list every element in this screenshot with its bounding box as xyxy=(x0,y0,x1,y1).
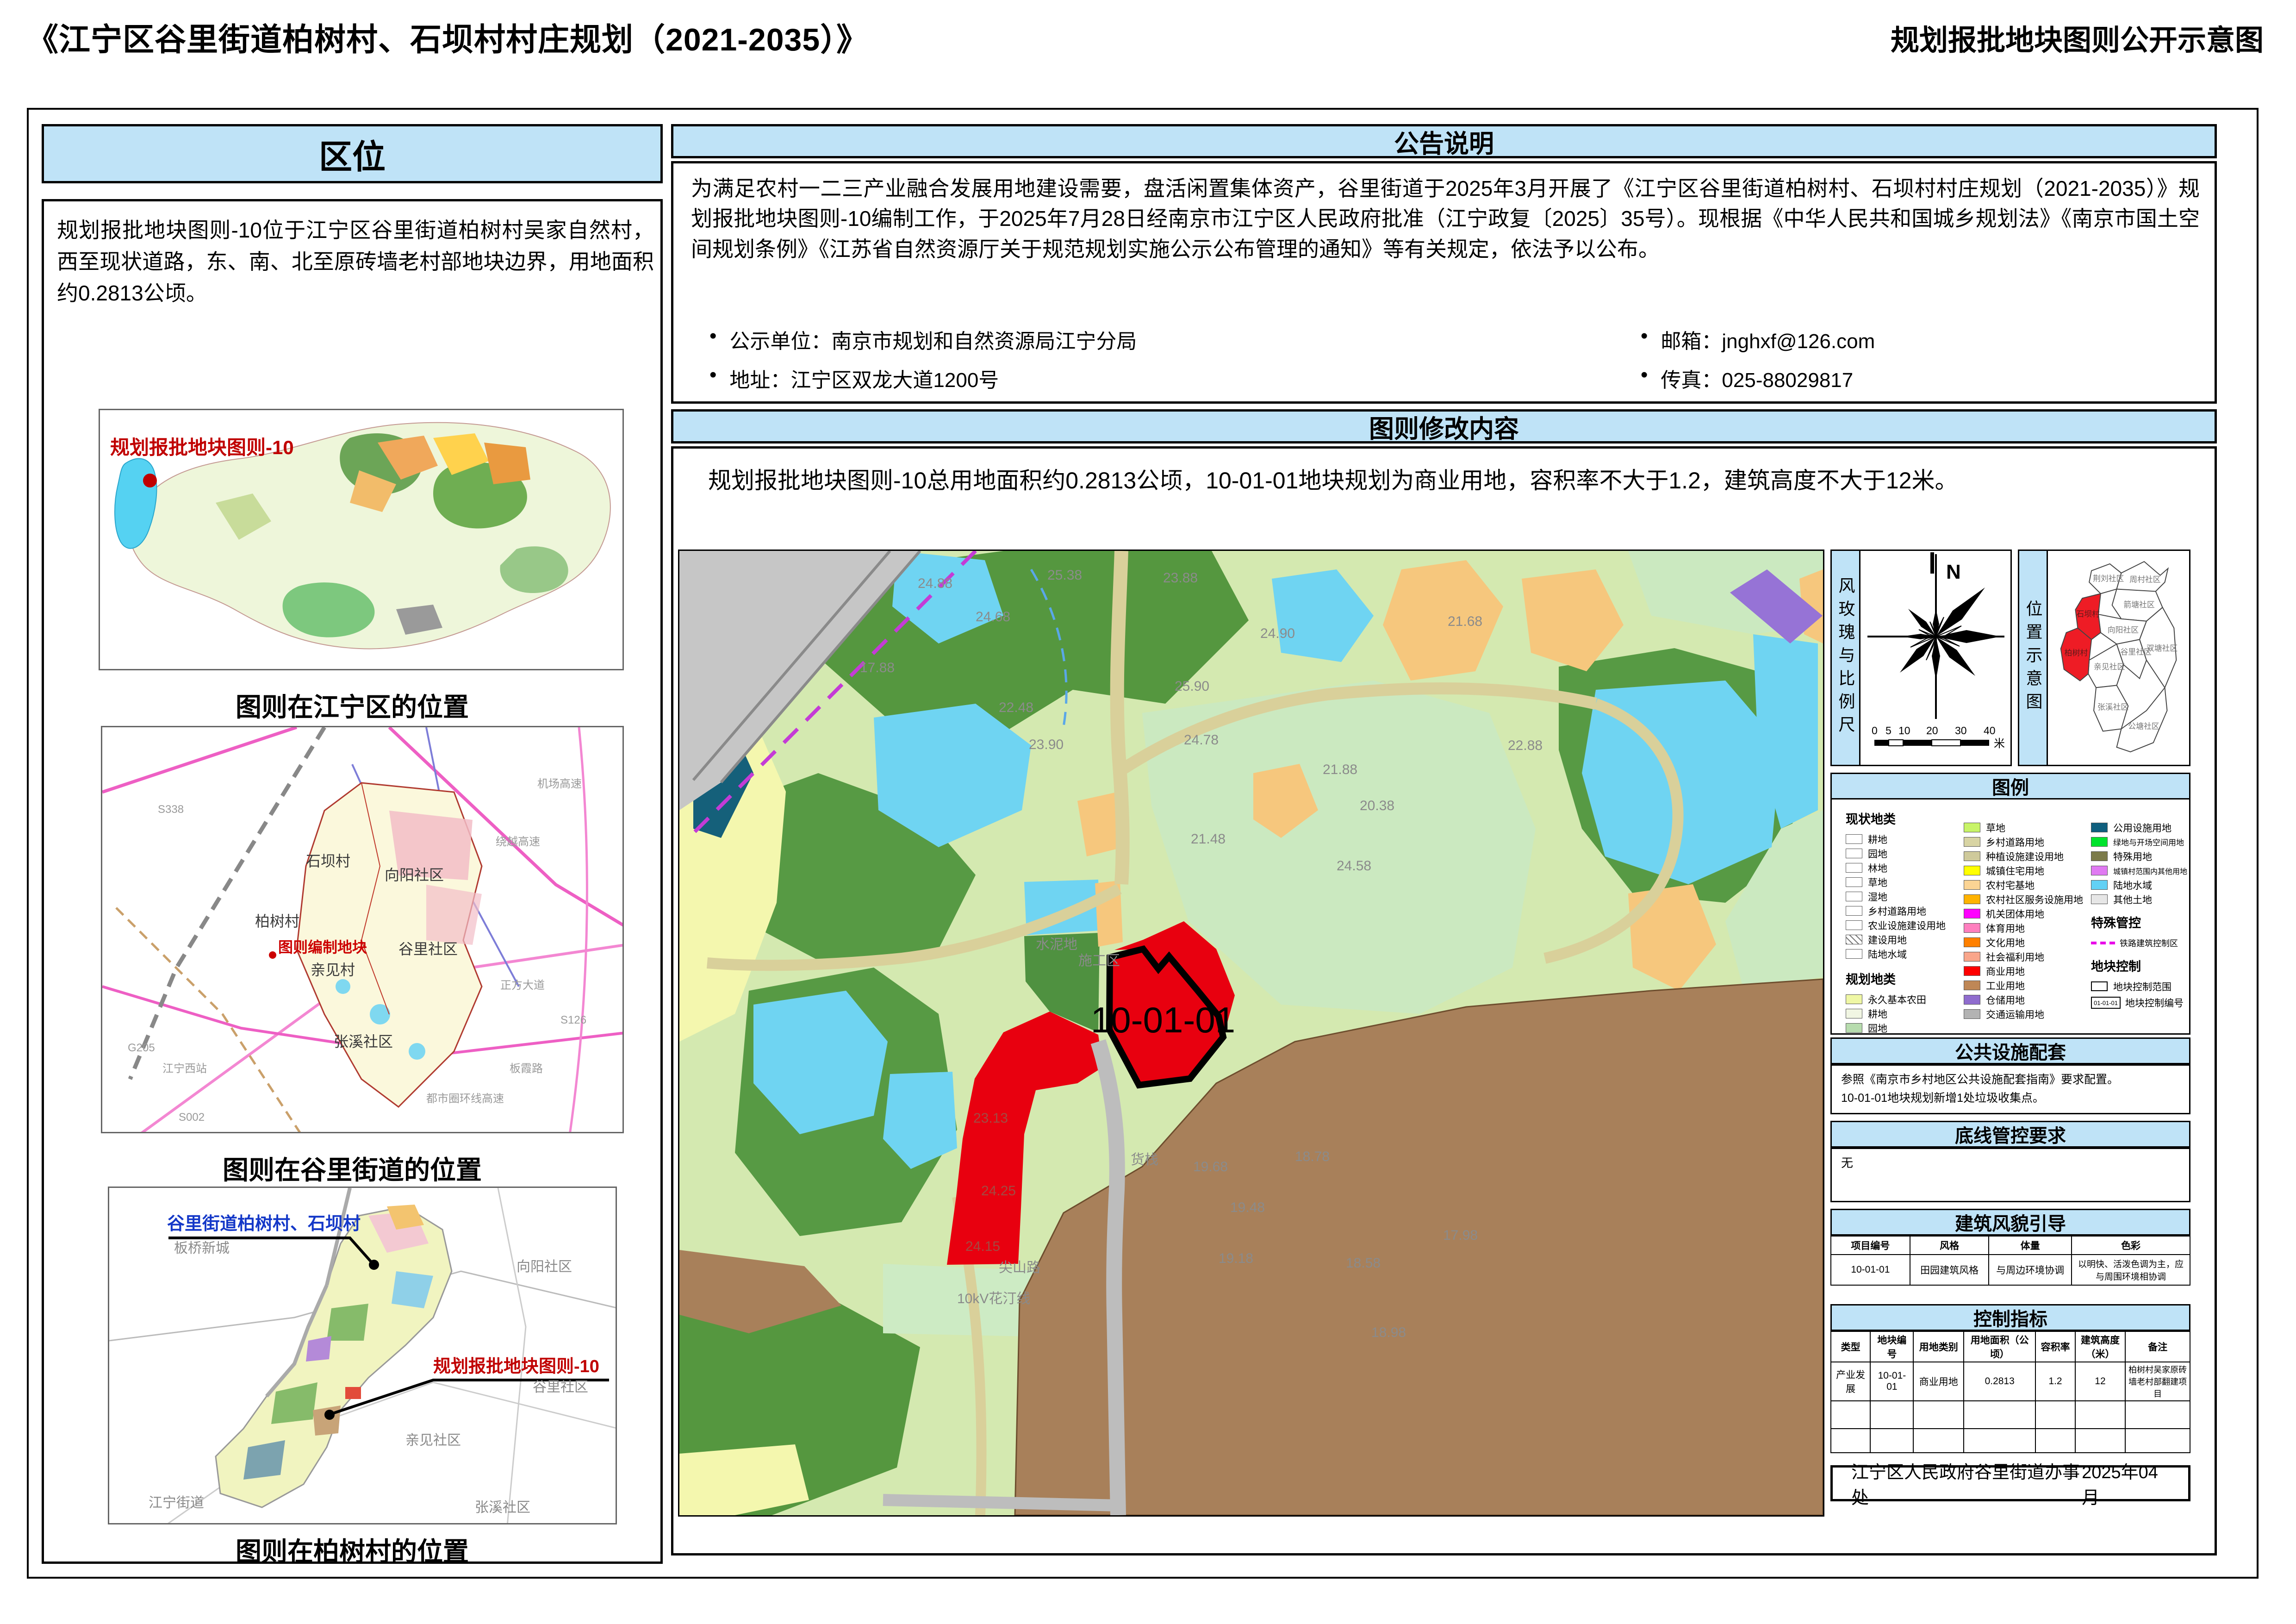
legend-col-planned2: 草地 乡村道路用地 种植设施建设用地 城镇住宅用地 农村宅基地 农村社区服务设施… xyxy=(1964,820,2093,1021)
notice-bullet: • 地址：江宁区双龙大道1200号 xyxy=(709,363,1589,393)
scale-tick: 30 xyxy=(1955,725,1967,737)
col-header: 用地类别 xyxy=(1913,1331,1964,1362)
main-plan-map: 10-01-01 施工区 货栈 尖山路 10kV花汀线 水泥地 24.88 25… xyxy=(678,550,1824,1517)
notice-bullet: • 传真：025-88029817 xyxy=(1641,363,2196,393)
map-guli-street: 石坝村 向阳社区 柏树村 谷里社区 亲见村 张溪社区 图则编制地块 S338 G… xyxy=(101,726,624,1133)
location-paragraph: 规划报批地块图则-10位于江宁区谷里街道柏树村吴家自然村，西至现状道路，东、南、… xyxy=(57,214,654,309)
bottomline-panel: 底线管控要求 无 xyxy=(1830,1121,2190,1202)
section-bar-location: 区位 xyxy=(42,124,663,183)
swatch-icon xyxy=(1964,837,1980,847)
road-label: 机场高速 xyxy=(537,778,582,790)
legend-item: 耕地 xyxy=(1846,832,1959,846)
site-marker-label: 规划报批地块图则-10 xyxy=(110,437,294,458)
section-bar-modification-label: 图则修改内容 xyxy=(1369,408,1519,445)
elevation-label: 24.68 xyxy=(976,609,1010,625)
map-baishu-village: 谷里街道柏树村、石坝村 规划报批地块图则-10 板桥新城 向阳社区 谷里社区 亲… xyxy=(108,1187,617,1524)
legend-special-title: 特殊管控 xyxy=(2091,913,2190,931)
legend-planned-title: 规划地类 xyxy=(1846,969,1959,987)
col-header: 项目编号 xyxy=(1831,1236,1910,1255)
inset-label-highlight: 柏树村 xyxy=(2065,649,2088,657)
road-label: 都市圈环线高速 xyxy=(426,1093,504,1105)
road-label: 板霞路 xyxy=(510,1062,543,1075)
legend-item: 湿地 xyxy=(1846,889,1959,904)
windrose-icon: N 0 5 10 20 30 40 米 xyxy=(1860,551,2011,765)
legend-item: 农业设施建设用地 xyxy=(1846,918,1959,932)
elevation-label: 21.68 xyxy=(1448,614,1482,629)
section-bar-location-label: 区位 xyxy=(319,130,386,178)
legend-item: 草地 xyxy=(1846,875,1959,889)
map-guli-svg: 石坝村 向阳社区 柏树村 谷里社区 亲见村 张溪社区 图则编制地块 S338 G… xyxy=(102,727,624,1133)
elevation-label: 17.98 xyxy=(1443,1228,1478,1243)
elevation-label: 25.38 xyxy=(1047,568,1082,583)
map3-bg-label: 亲见社区 xyxy=(405,1433,461,1448)
bottomline-content: 无 xyxy=(1830,1148,2190,1202)
elevation-label: 22.88 xyxy=(1508,738,1543,753)
swatch-icon xyxy=(1964,851,1980,861)
parcel-range-swatch-icon xyxy=(2091,981,2108,991)
legend-item: 农村社区服务设施用地 xyxy=(1964,892,2093,906)
swatch-icon xyxy=(1846,906,1862,916)
table-row: 10-01-01 田园建筑风格 与周边环境协调 以明快、活泼色调为主，应与周围环… xyxy=(1831,1255,2190,1285)
col-header: 体量 xyxy=(1989,1236,2071,1255)
swatch-icon xyxy=(1964,1009,1980,1019)
elevation-label: 24.78 xyxy=(1184,732,1219,748)
styleguide-panel: 建筑风貌引导 项目编号 风格 体量 色彩 10-01-01 田园建筑风格 与周边… xyxy=(1830,1209,2190,1286)
facilities-content: 参照《南京市乡村地区公共设施配套指南》要求配置。 10-01-01地块规划新增1… xyxy=(1830,1064,2190,1114)
elevation-label: 22.48 xyxy=(999,700,1033,715)
windrose-title-strip: 风玫瑰与比例尺 xyxy=(1832,551,1860,765)
swatch-icon xyxy=(2091,823,2108,832)
inset-label: 周村社区 xyxy=(2129,575,2160,584)
swatch-icon xyxy=(1964,937,1980,947)
inset-label: 双塘社区 xyxy=(2147,644,2178,653)
elevation-label: 21.48 xyxy=(1191,831,1226,847)
legend-item: 草地 xyxy=(1964,820,2093,835)
bullet-icon: • xyxy=(1641,363,1648,387)
map-baishu-svg: 谷里街道柏树村、石坝村 规划报批地块图则-10 板桥新城 向阳社区 谷里社区 亲… xyxy=(109,1188,617,1524)
facilities-header-bar: 公共设施配套 xyxy=(1830,1037,2190,1064)
scale-tick: 40 xyxy=(1984,725,1996,737)
col-header: 备注 xyxy=(2125,1331,2190,1362)
legend-item: 地块控制范围 xyxy=(2091,979,2190,993)
legend-item: 仓储用地 xyxy=(1964,993,2093,1007)
styleguide-header-bar: 建筑风貌引导 xyxy=(1830,1209,2190,1236)
section-bar-notice-label: 公告说明 xyxy=(1394,123,1494,160)
elevation-label: 18.98 xyxy=(1371,1325,1406,1340)
inset-label-highlight: 石坝村 xyxy=(2076,610,2100,618)
inset-label: 亲见社区 xyxy=(2094,662,2125,671)
map3-bg-label: 谷里社区 xyxy=(533,1380,588,1395)
main-plan-map-svg: 10-01-01 施工区 货栈 尖山路 10kV花汀线 水泥地 24.88 25… xyxy=(679,551,1823,1515)
swatch-icon xyxy=(1846,834,1862,844)
legend-header-bar: 图例 xyxy=(1830,773,2190,800)
map2-label: 张溪社区 xyxy=(334,1033,393,1050)
swatch-icon xyxy=(1846,935,1862,944)
elevation-label: 23.90 xyxy=(1029,737,1064,752)
area-label: 施工区 xyxy=(1078,953,1120,968)
map2-label: 谷里社区 xyxy=(398,941,458,957)
inset-label: 向阳社区 xyxy=(2108,626,2139,635)
legend-item: 工业用地 xyxy=(1964,978,2093,993)
map2-caption: 图则在谷里街道的位置 xyxy=(44,1149,660,1187)
road-label: S002 xyxy=(179,1111,205,1124)
legend-item: 园地 xyxy=(1846,846,1959,861)
bullet-icon: • xyxy=(709,363,716,387)
legend-col-current: 现状地类 耕地 园地 林地 草地 湿地 乡村道路用地 农业设施建设用地 建设用地… xyxy=(1846,806,1959,1049)
inset-label: 公塘社区 xyxy=(2128,722,2159,731)
section-bar-modification: 图则修改内容 xyxy=(671,409,2217,443)
page-title: 《江宁区谷里街道柏树村、石坝村村庄规划（2021-2035）》 xyxy=(27,14,1230,60)
road-label: G205 xyxy=(128,1042,155,1054)
legend-col-planned3: 公用设施用地 绿地与开场空间用地 特殊用地 城镇村范围内其他用地 陆地水域 其他… xyxy=(2091,820,2190,1012)
bottomline-header: 底线管控要求 xyxy=(1955,1121,2066,1148)
inset-label: 张溪社区 xyxy=(2097,703,2128,712)
map2-label: 向阳社区 xyxy=(385,867,444,883)
elevation-label: 24.90 xyxy=(1260,626,1295,641)
legend-item: 园地 xyxy=(1846,1021,1959,1035)
col-header: 用地面积（公顷） xyxy=(1964,1331,2035,1362)
plan-notice-sheet: 《江宁区谷里街道柏树村、石坝村村庄规划（2021-2035）》 规划报批地块图则… xyxy=(0,0,2296,1624)
legend-item: 铁路建筑控制区 xyxy=(2091,936,2190,950)
road-label: 绕越高速 xyxy=(496,836,540,848)
swatch-icon xyxy=(1846,920,1862,930)
railway-control-swatch-icon xyxy=(2091,942,2115,944)
road-label: 江宁西站 xyxy=(162,1062,207,1075)
road-label: 正方大道 xyxy=(500,979,545,992)
swatch-icon xyxy=(1964,894,1980,904)
map2-marker-label: 图则编制地块 xyxy=(278,939,367,956)
notice-bullet-text: 公示单位：南京市规划和自然资源局江宁分局 xyxy=(729,325,1137,354)
legend-item: 乡村道路用地 xyxy=(1964,835,2093,849)
scale-tick: 0 xyxy=(1872,725,1878,737)
swatch-icon xyxy=(1846,877,1862,887)
elevation-label: 18.58 xyxy=(1346,1255,1381,1271)
swatch-icon xyxy=(2091,894,2108,904)
legend-item: 永久基本农田 xyxy=(1846,992,1959,1006)
footer-date: 2025年04月 xyxy=(2082,1458,2170,1509)
indicators-header-bar: 控制指标 xyxy=(1830,1304,2190,1331)
section-bar-notice: 公告说明 xyxy=(671,124,2217,158)
legend-item: 交通运输用地 xyxy=(1964,1007,2093,1021)
legend-item: 陆地水域 xyxy=(2091,878,2190,892)
map3-bg-label: 江宁街道 xyxy=(149,1495,204,1511)
swatch-icon xyxy=(1964,966,1980,976)
swatch-icon xyxy=(1846,892,1862,901)
map3-bg-label: 张溪社区 xyxy=(475,1500,530,1515)
legend-panel: 图例 现状地类 耕地 园地 林地 草地 湿地 乡村道路用地 农业设施建设用地 建… xyxy=(1830,773,2190,1035)
page-subtitle: 规划报批地块图则公开示意图 xyxy=(1477,17,2264,58)
legend-item: 特殊用地 xyxy=(2091,849,2190,863)
facilities-line: 10-01-01地块规划新增1处垃圾收集点。 xyxy=(1841,1089,2180,1107)
map3-blue-label: 谷里街道柏树村、石坝村 xyxy=(167,1214,361,1234)
swatch-icon xyxy=(1846,849,1862,858)
legend-current-title: 现状地类 xyxy=(1846,809,1959,827)
swatch-icon xyxy=(2091,880,2108,890)
legend-header: 图例 xyxy=(1992,773,2029,800)
area-label: 水泥地 xyxy=(1036,937,1077,952)
swatch-icon xyxy=(1846,949,1862,959)
scale-bar: 0 5 10 20 30 40 米 xyxy=(1872,725,2005,750)
map3-bg-label: 向阳社区 xyxy=(516,1259,572,1274)
legend-item: 林地 xyxy=(1846,861,1959,875)
notice-bullet-fax: 传真：025-88029817 xyxy=(1661,363,1853,393)
legend-item: 公用设施用地 xyxy=(2091,820,2190,835)
notice-bullet: • 公示单位：南京市规划和自然资源局江宁分局 xyxy=(709,325,1589,354)
swatch-icon xyxy=(1964,923,1980,933)
legend-item: 乡村道路用地 xyxy=(1846,904,1959,918)
windrose-title: 风玫瑰与比例尺 xyxy=(1834,577,1858,739)
scale-tick: 10 xyxy=(1898,725,1910,737)
swatch-icon xyxy=(1846,863,1862,873)
elevation-label: 19.68 xyxy=(1193,1159,1228,1174)
swatch-icon xyxy=(2091,866,2108,875)
col-header: 风格 xyxy=(1910,1236,1989,1255)
styleguide-table: 项目编号 风格 体量 色彩 10-01-01 田园建筑风格 与周边环境协调 以明… xyxy=(1830,1236,2190,1286)
legend-item: 商业用地 xyxy=(1964,964,2093,978)
windrose-panel: 风玫瑰与比例尺 xyxy=(1830,550,2012,766)
swatch-icon xyxy=(1964,880,1980,890)
elevation-label: 25.90 xyxy=(1175,679,1209,694)
elevation-label: 23.88 xyxy=(1163,570,1198,586)
elevation-label: 23.13 xyxy=(973,1111,1008,1126)
legend-item: 建设用地 xyxy=(1846,932,1959,947)
swatch-icon xyxy=(2091,837,2108,847)
swatch-icon xyxy=(1846,994,1862,1004)
col-header: 建筑高度（米） xyxy=(2075,1331,2126,1362)
swatch-icon xyxy=(1964,981,1980,990)
legend-item: 体育用地 xyxy=(1964,921,2093,935)
bullet-icon: • xyxy=(1641,325,1648,348)
col-header: 色彩 xyxy=(2072,1236,2190,1255)
legend-item: 城镇住宅用地 xyxy=(1964,863,2093,878)
swatch-icon xyxy=(1964,909,1980,918)
col-header: 容积率 xyxy=(2035,1331,2075,1362)
legend-item: 耕地 xyxy=(1846,1006,1959,1021)
legend-item: 其他土地 xyxy=(2091,892,2190,906)
table-row: 产业发展 10-01-01 商业用地 0.2813 1.2 12 柏树村吴家原砖… xyxy=(1831,1362,2190,1401)
modification-paragraph: 规划报批地块图则-10总用地面积约0.2813公顷，10-01-01地块规划为商… xyxy=(694,463,2198,498)
swatch-icon xyxy=(1964,866,1980,875)
map2-label: 亲见村 xyxy=(311,962,355,978)
col-header: 地块编号 xyxy=(1870,1331,1913,1362)
road-label: S338 xyxy=(158,803,184,816)
elevation-label: 21.88 xyxy=(1323,762,1357,777)
table-row-empty xyxy=(1831,1429,2190,1453)
elevation-label: 18.78 xyxy=(1295,1149,1330,1164)
indicators-header: 控制指标 xyxy=(1973,1304,2047,1331)
legend-item: 种植设施建设用地 xyxy=(1964,849,2093,863)
bullet-icon: • xyxy=(709,325,716,348)
facilities-header: 公共设施配套 xyxy=(1955,1037,2066,1064)
area-label: 尖山路 xyxy=(999,1260,1040,1275)
legend-control-title: 地块控制 xyxy=(2091,956,2190,974)
legend-item: 陆地水域 xyxy=(1846,947,1959,961)
site-marker-dot xyxy=(143,474,157,487)
location-inset-svg: 荆刘社区 周村社区 箭塘社区 向阳社区 亲见社区 谷里社区 双塘社区 张溪社区 … xyxy=(2048,551,2190,765)
swatch-icon xyxy=(1964,952,1980,962)
swatch-icon xyxy=(1846,1009,1862,1018)
scale-unit: 米 xyxy=(1994,737,2005,750)
road-label: S126 xyxy=(560,1014,586,1026)
parcel-code-swatch: 01-01-01 xyxy=(2091,997,2121,1009)
scale-tick: 5 xyxy=(1885,725,1892,737)
indicators-table: 类型 地块编号 用地类别 用地面积（公顷） 容积率 建筑高度（米） 备注 产业发… xyxy=(1830,1331,2190,1453)
elevation-label: 24.15 xyxy=(965,1239,1000,1254)
location-inset-title-strip: 位置示意图 xyxy=(2019,551,2048,765)
notice-bullet: • 邮箱：jnghxf@126.com xyxy=(1641,325,2196,354)
inset-label: 荆刘社区 xyxy=(2093,575,2124,583)
north-label: N xyxy=(1946,561,1961,583)
map3-bg-label: 板桥新城 xyxy=(174,1241,230,1256)
elevation-label: 24.88 xyxy=(918,576,952,591)
modification-box: 规划报批地块图则-10总用地面积约0.2813公顷，10-01-01地块规划为商… xyxy=(671,446,2217,1555)
legend-item: 社会福利用地 xyxy=(1964,949,2093,964)
notice-box: 为满足农村一二三产业融合发展用地建设需要，盘活闲置集体资产，谷里街道于2025年… xyxy=(671,161,2217,404)
legend-item: 机关团体用地 xyxy=(1964,906,2093,921)
swatch-icon xyxy=(1964,823,1980,832)
elevation-label: 17.88 xyxy=(860,660,895,675)
legend-item: 文化用地 xyxy=(1964,935,2093,949)
map3-red-label: 规划报批地块图则-10 xyxy=(433,1357,599,1376)
map2-label: 石坝村 xyxy=(306,853,350,869)
facilities-panel: 公共设施配套 参照《南京市乡村地区公共设施配套指南》要求配置。 10-01-01… xyxy=(1830,1037,2190,1114)
table-row-empty xyxy=(1831,1401,2190,1429)
indicators-panel: 控制指标 类型 地块编号 用地类别 用地面积（公顷） 容积率 建筑高度（米） 备… xyxy=(1830,1304,2190,1453)
map-jiangning-svg: 规划报批地块图则-10 xyxy=(100,410,624,670)
elevation-label: 19.18 xyxy=(1219,1251,1253,1266)
inset-label: 箭塘社区 xyxy=(2123,600,2154,609)
swatch-icon xyxy=(2091,851,2108,861)
footer-bar: 江宁区人民政府谷里街道办事处 2025年04月 xyxy=(1830,1465,2190,1501)
styleguide-header: 建筑风貌引导 xyxy=(1955,1209,2066,1236)
map1-caption: 图则在江宁区的位置 xyxy=(44,687,660,724)
elevation-label: 24.25 xyxy=(981,1183,1016,1199)
scale-tick: 20 xyxy=(1926,725,1938,737)
elevation-label: 20.38 xyxy=(1360,798,1394,813)
parcel-label: 10-01-01 xyxy=(1091,999,1235,1040)
map2-label: 柏树村 xyxy=(255,913,299,930)
notice-paragraph: 为满足农村一二三产业融合发展用地建设需要，盘活闲置集体资产，谷里街道于2025年… xyxy=(691,174,2200,264)
legend-item: 01-01-01地块控制编号 xyxy=(2091,993,2190,1012)
footer-org: 江宁区人民政府谷里街道办事处 xyxy=(1851,1458,2082,1509)
legend-item: 城镇村范围内其他用地 xyxy=(2091,863,2190,878)
location-inset-title: 位置示意图 xyxy=(2021,600,2045,716)
bottomline-header-bar: 底线管控要求 xyxy=(1830,1121,2190,1148)
elevation-label: 24.58 xyxy=(1337,858,1371,874)
area-label: 货栈 xyxy=(1131,1152,1158,1168)
location-box: 规划报批地块图则-10位于江宁区谷里街道柏树村吴家自然村，西至现状道路，东、南、… xyxy=(42,199,663,1564)
location-inset-panel: 位置示意图 荆刘社区 周村社区 xyxy=(2018,550,2190,766)
notice-bullet-text: 地址：江宁区双龙大道1200号 xyxy=(729,363,999,393)
notice-bullet-email: 邮箱：jnghxf@126.com xyxy=(1661,325,1875,354)
col-header: 类型 xyxy=(1831,1331,1870,1362)
area-label: 10kV花汀线 xyxy=(957,1291,1030,1306)
map-jiangning-district: 规划报批地块图则-10 xyxy=(99,409,624,670)
legend-item: 农村宅基地 xyxy=(1964,878,2093,892)
facilities-line: 参照《南京市乡村地区公共设施配套指南》要求配置。 xyxy=(1841,1070,2180,1089)
legend-item: 绿地与开场空间用地 xyxy=(2091,835,2190,849)
swatch-icon xyxy=(1964,995,1980,1005)
map3-caption: 图则在柏树村的位置 xyxy=(44,1531,660,1568)
bottomline-value: 无 xyxy=(1841,1156,1853,1170)
elevation-label: 19.48 xyxy=(1230,1200,1265,1215)
swatch-icon xyxy=(1846,1023,1862,1033)
